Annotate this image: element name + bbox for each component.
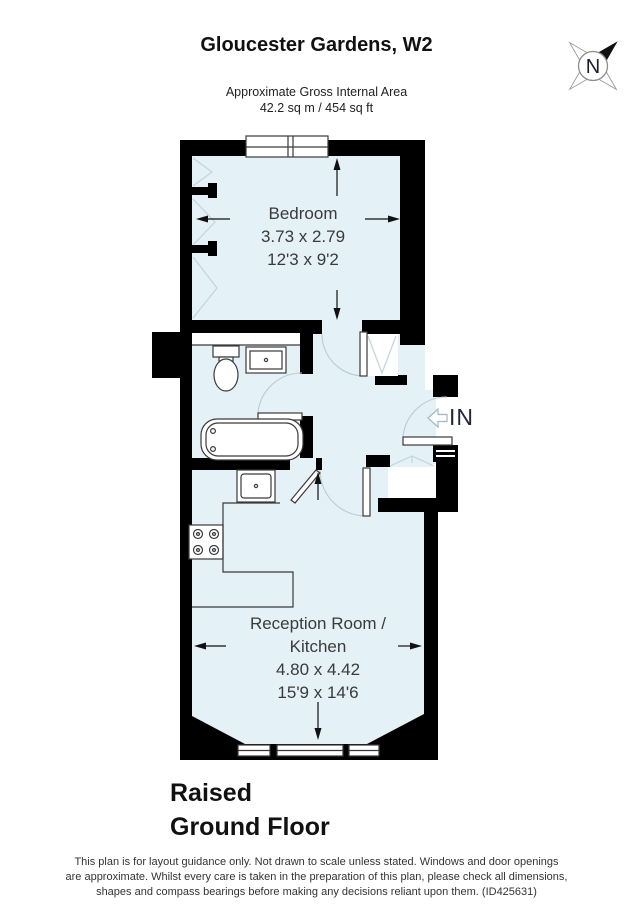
bathtub-icon — [201, 419, 303, 460]
entrance-in-label: IN — [449, 404, 474, 431]
disclaimer-line1: This plan is for layout guidance only. N… — [0, 855, 633, 870]
disclaimer-line2: are approximate. Whilst every care is ta… — [0, 870, 633, 885]
hall-closet — [366, 334, 398, 376]
disclaimer-text: This plan is for layout guidance only. N… — [0, 855, 633, 900]
bay-windows — [238, 745, 379, 756]
compass-rose-icon: N — [556, 28, 632, 108]
area-subtitle: Approximate Gross Internal Area 42.2 sq … — [0, 84, 633, 116]
disclaimer-line3: shapes and compass bearings before makin… — [0, 885, 633, 900]
toilet-icon — [213, 346, 239, 391]
kitchen-sink-icon — [237, 470, 275, 502]
reception-label: Reception Room / Kitchen 4.80 x 4.42 15'… — [200, 612, 436, 704]
bedroom-metric-dims: 3.73 x 2.79 — [193, 225, 413, 248]
sink-vanity-icon — [246, 347, 286, 373]
area-line-2: 42.2 sq m / 454 sq ft — [0, 100, 633, 116]
reception-name-line1: Reception Room / — [200, 612, 436, 635]
hob-icon — [189, 525, 223, 559]
bedroom-imperial-dims: 12'3 x 9'2 — [193, 248, 413, 271]
floor-name-line2: Ground Floor — [170, 810, 330, 844]
bedroom-name: Bedroom — [193, 202, 413, 225]
reception-metric-dims: 4.80 x 4.42 — [200, 658, 436, 681]
bedroom-window — [246, 136, 328, 157]
floor-name: Raised Ground Floor — [170, 776, 330, 844]
bedroom-label: Bedroom 3.73 x 2.79 12'3 x 9'2 — [193, 202, 413, 271]
page-title: Gloucester Gardens, W2 — [0, 34, 633, 57]
bathroom-partition — [192, 333, 300, 345]
reception-name-line2: Kitchen — [200, 635, 436, 658]
compass-label: N — [586, 56, 600, 78]
floor-name-line1: Raised — [170, 776, 330, 810]
reception-imperial-dims: 15'9 x 14'6 — [200, 681, 436, 704]
area-line-1: Approximate Gross Internal Area — [0, 84, 633, 100]
floorplan-page: Gloucester Gardens, W2 Approximate Gross… — [0, 0, 633, 922]
